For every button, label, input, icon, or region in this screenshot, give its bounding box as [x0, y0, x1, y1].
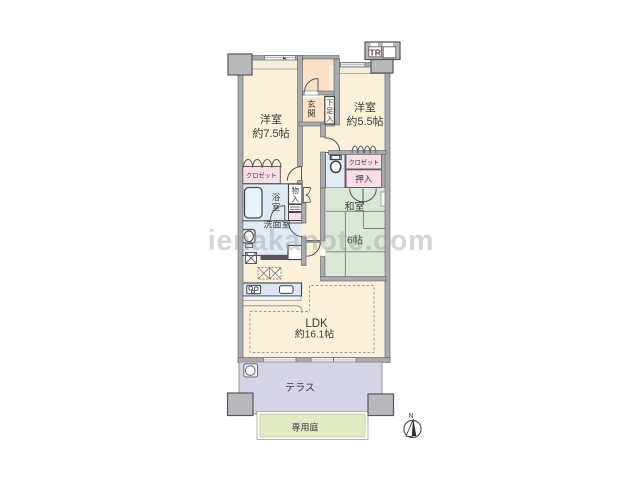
svg-text:物: 物: [292, 185, 300, 195]
svg-text:玄: 玄: [307, 99, 316, 109]
svg-text:テラス: テラス: [285, 382, 315, 394]
svg-text:LDK: LDK: [305, 318, 328, 330]
svg-text:浴: 浴: [272, 192, 281, 202]
svg-text:約7.5帖: 約7.5帖: [252, 126, 289, 140]
svg-text:洋室: 洋室: [354, 100, 376, 114]
svg-text:関: 関: [307, 109, 316, 119]
svg-text:下: 下: [326, 99, 333, 107]
svg-text:和室: 和室: [345, 200, 365, 213]
svg-text:洋室: 洋室: [260, 112, 282, 126]
svg-text:TR: TR: [370, 47, 381, 57]
svg-text:N: N: [408, 413, 413, 420]
svg-text:クロゼット: クロゼット: [246, 171, 277, 180]
svg-text:ienakanote.com: ienakanote.com: [208, 225, 435, 257]
svg-text:入: 入: [326, 115, 333, 123]
svg-text:足: 足: [326, 107, 333, 115]
svg-text:入: 入: [292, 195, 300, 204]
svg-text:約16.1帖: 約16.1帖: [295, 328, 334, 341]
svg-text:押入: 押入: [355, 174, 373, 184]
svg-text:約5.5帖: 約5.5帖: [346, 114, 383, 128]
svg-text:専用庭: 専用庭: [291, 422, 318, 433]
svg-text:室: 室: [272, 202, 281, 212]
svg-text:クロゼット: クロゼット: [349, 157, 380, 166]
